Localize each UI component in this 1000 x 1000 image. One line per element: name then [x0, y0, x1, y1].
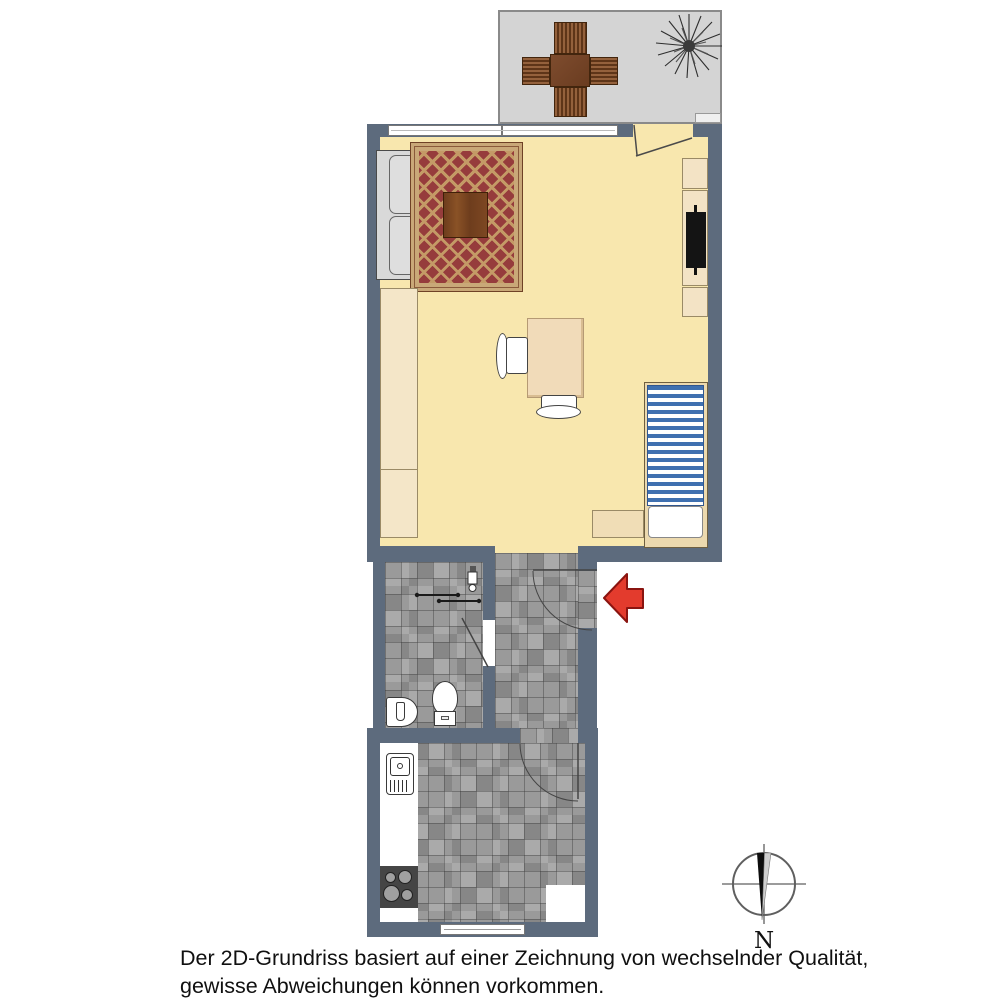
- plan-overlay: [0, 0, 1000, 1000]
- shower-rail-icon: [415, 593, 481, 603]
- disclaimer-caption: Der 2D-Grundriss basiert auf einer Zeich…: [180, 944, 868, 1000]
- kitchen-door-swing: [520, 744, 578, 801]
- compass-rose-icon: [722, 844, 806, 924]
- bathroom-door-leaf: [462, 618, 488, 667]
- entrance-arrow-icon: [604, 574, 643, 622]
- shower-fitting-icon: [468, 566, 477, 592]
- balcony-door-leaf: [634, 125, 692, 156]
- caption-line-1: Der 2D-Grundriss basiert auf einer Zeich…: [180, 944, 868, 972]
- floor-plan: N Der 2D-Grundriss basiert auf einer Zei…: [0, 0, 1000, 1000]
- caption-line-2: gewisse Abweichungen können vorkommen.: [180, 972, 868, 1000]
- entrance-door-swing: [533, 571, 592, 630]
